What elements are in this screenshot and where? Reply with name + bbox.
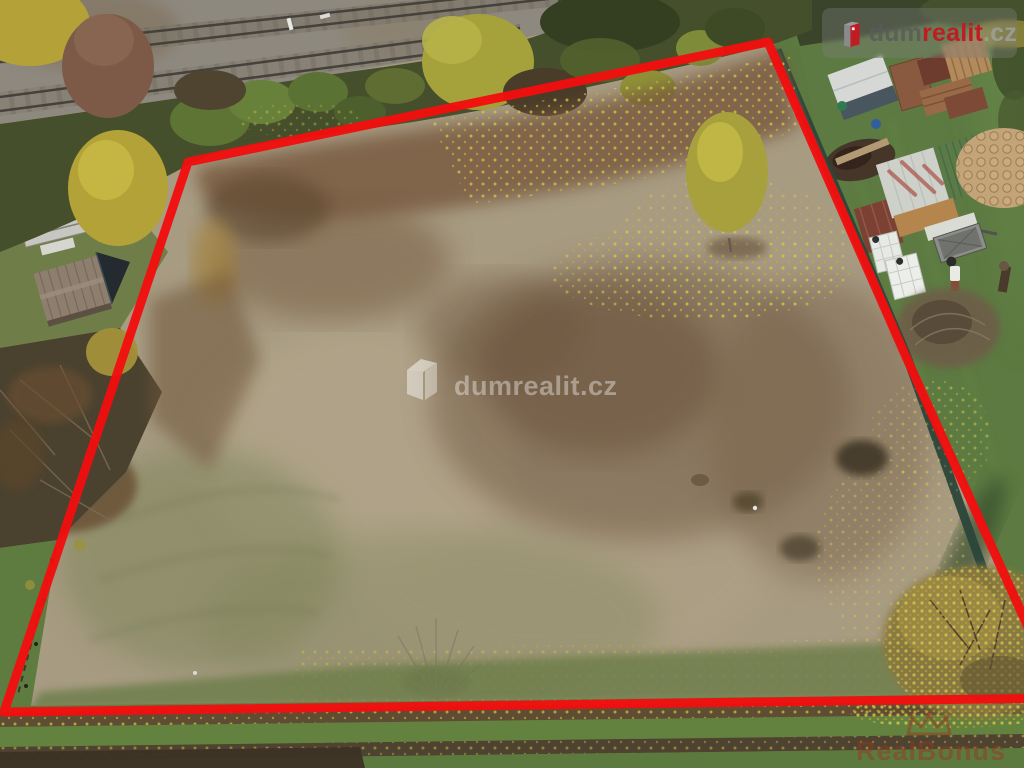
aerial-photo-scene: dumrealit.cz dumrealit.cz RealBonus <box>0 0 1024 768</box>
logo-text-dum: dum <box>869 19 922 47</box>
green-barrel <box>837 101 847 111</box>
white-cylinder <box>950 266 960 281</box>
terrain-graphic <box>0 0 1024 768</box>
logo-text-cz: .cz <box>983 19 1017 47</box>
dead-bush <box>836 440 888 476</box>
logo-text: dumrealit.cz <box>869 21 1017 46</box>
dumrealit-logo-badge: dumrealit.cz <box>822 8 1017 58</box>
dumrealit-house-icon <box>842 13 862 53</box>
logo-text-realit: realit <box>922 19 983 47</box>
blue-barrel <box>871 119 881 129</box>
